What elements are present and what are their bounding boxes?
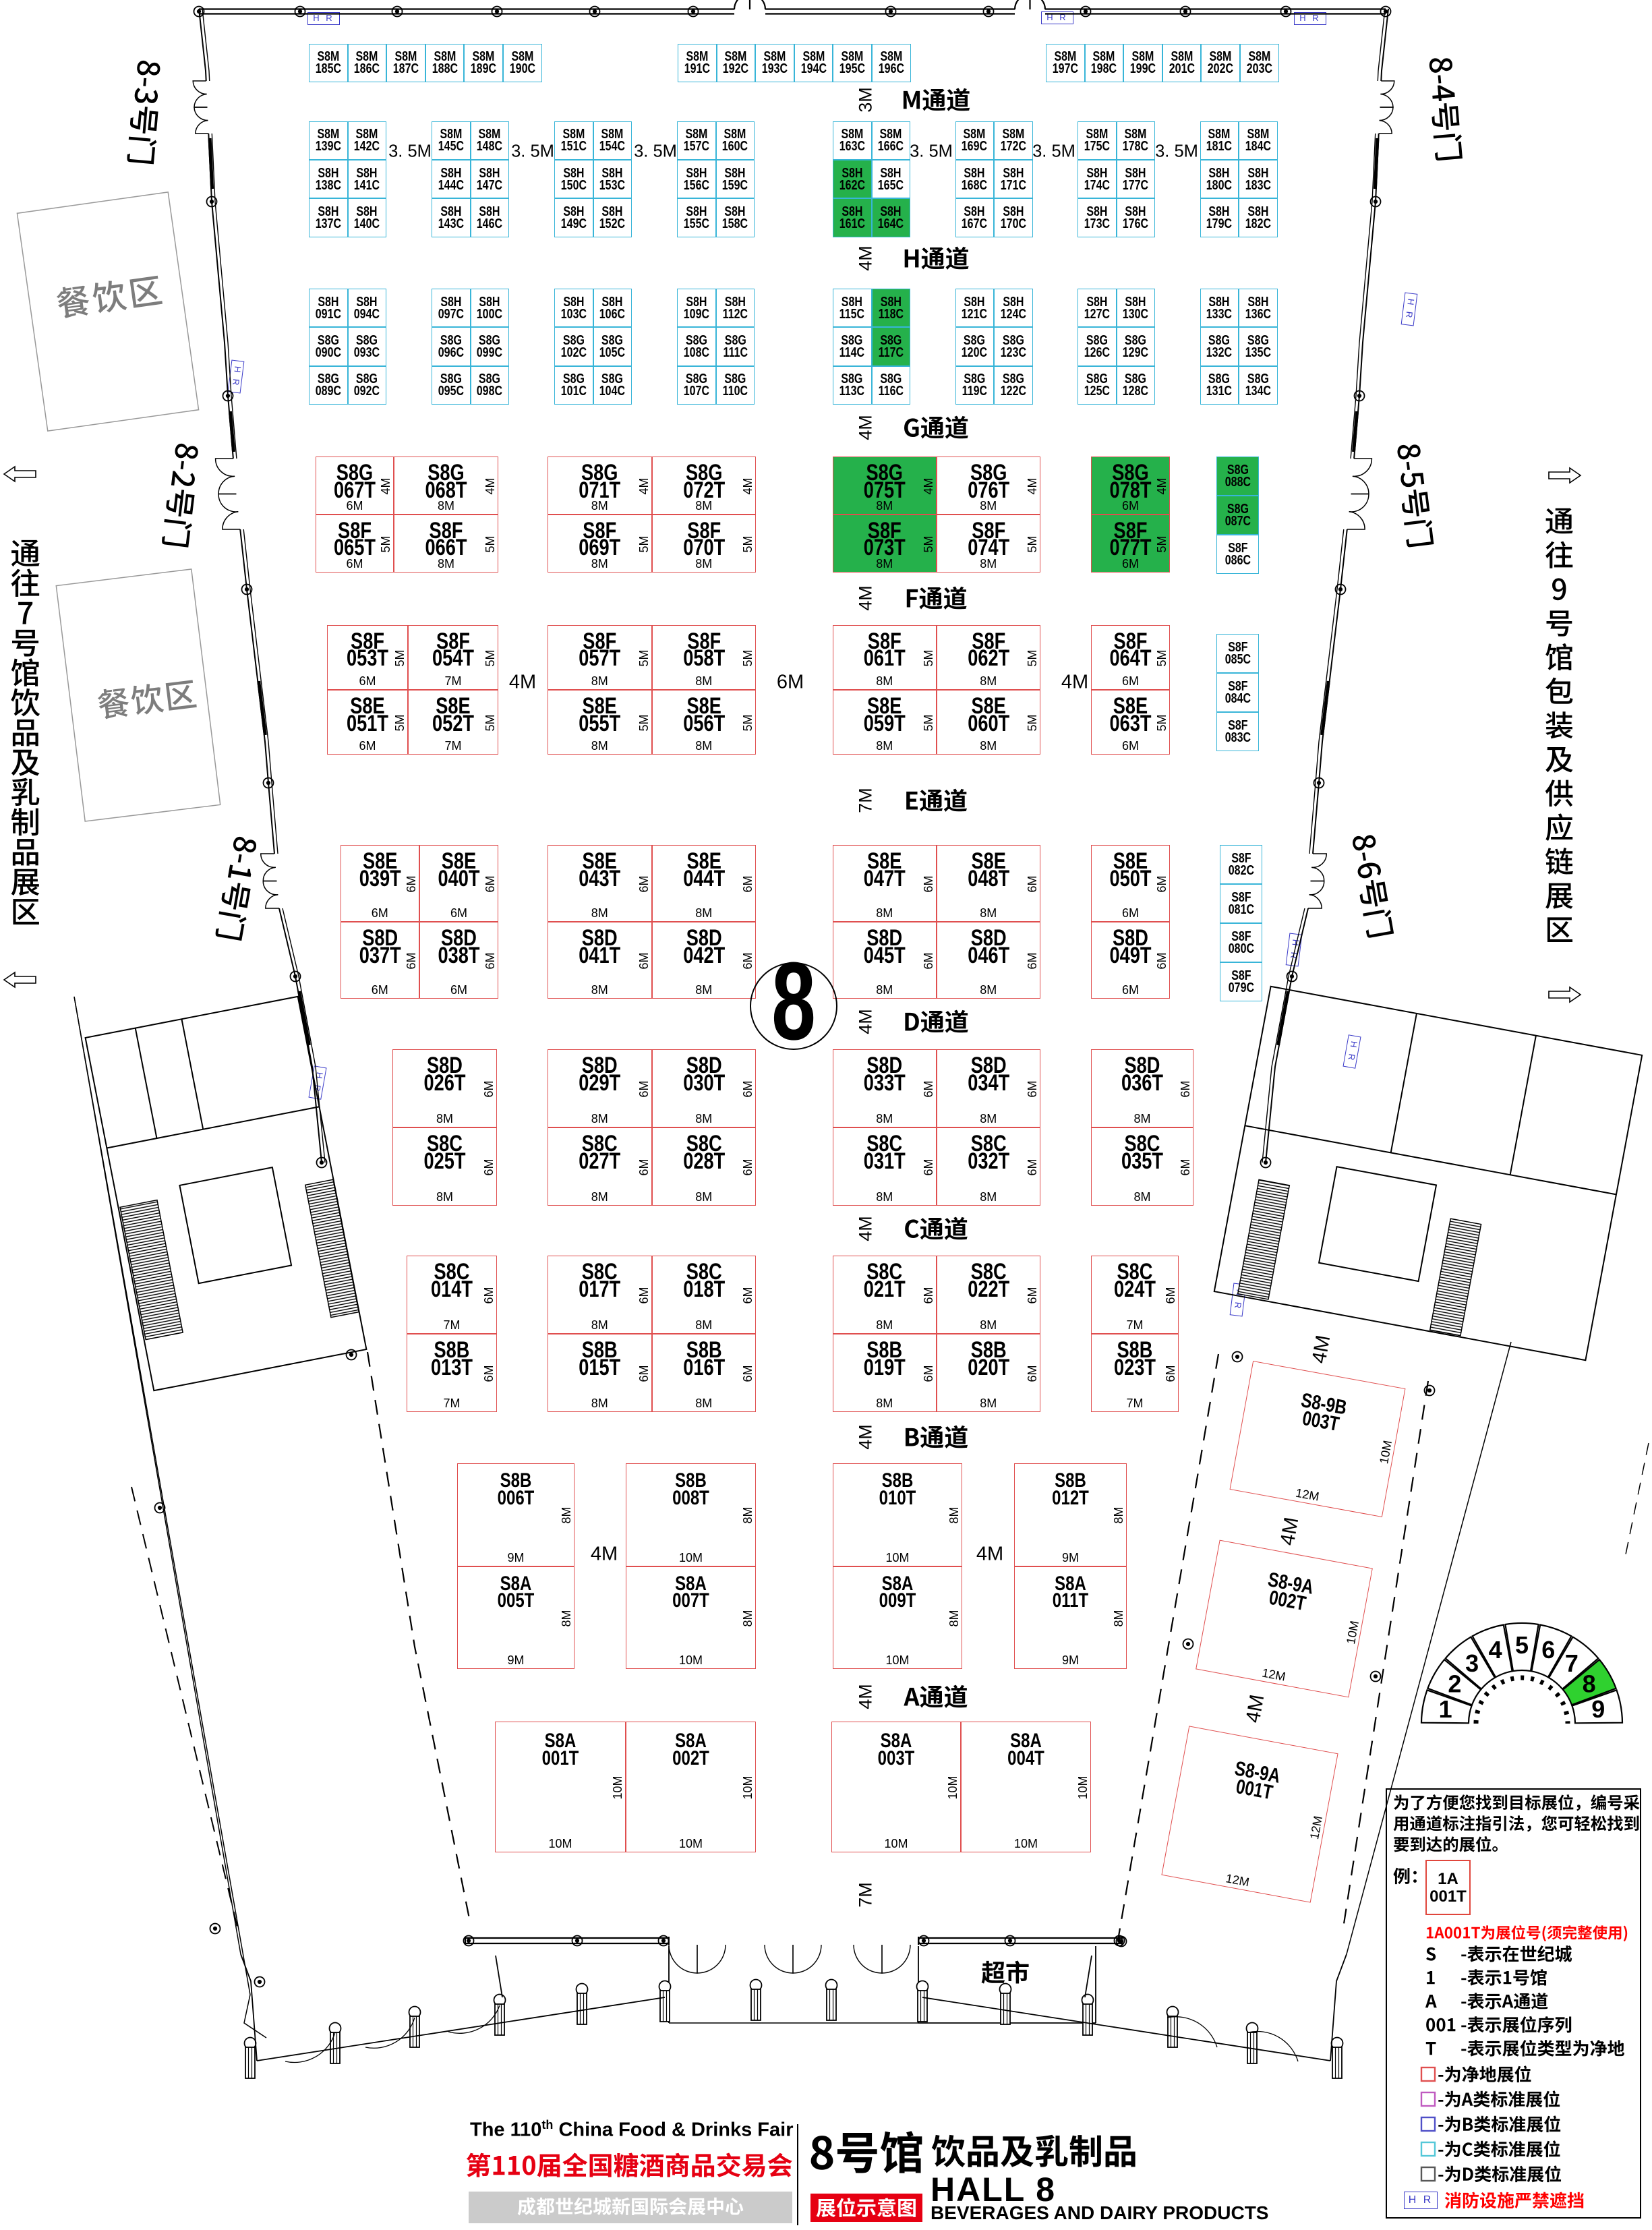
svg-text:4: 4 bbox=[1489, 1636, 1502, 1664]
svg-text:5: 5 bbox=[1515, 1631, 1529, 1659]
svg-text:7: 7 bbox=[1565, 1649, 1579, 1677]
svg-text:8: 8 bbox=[1583, 1670, 1596, 1698]
svg-text:2: 2 bbox=[1448, 1670, 1461, 1698]
svg-text:9: 9 bbox=[1591, 1695, 1605, 1723]
svg-text:6: 6 bbox=[1541, 1636, 1555, 1664]
svg-text:3: 3 bbox=[1465, 1649, 1479, 1677]
svg-text:1: 1 bbox=[1439, 1695, 1452, 1723]
